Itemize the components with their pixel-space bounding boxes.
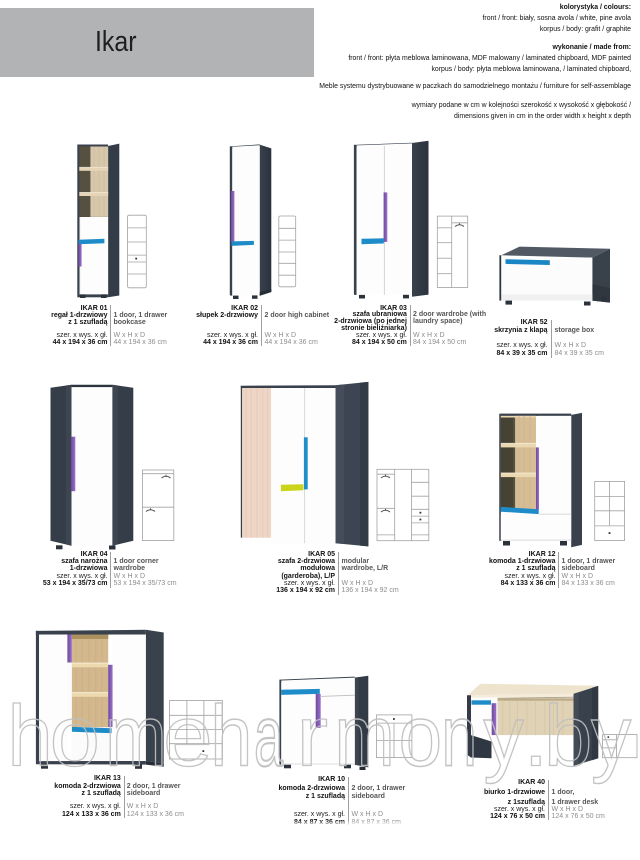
svg-text:r: r <box>296 689 328 784</box>
svg-text:m: m <box>335 687 395 783</box>
svg-text:y: y <box>591 688 631 784</box>
svg-text:o: o <box>399 689 442 784</box>
svg-text:b: b <box>544 688 593 784</box>
svg-text:o: o <box>50 688 100 784</box>
svg-text:m: m <box>105 688 167 784</box>
svg-text:e: e <box>163 688 213 784</box>
svg-text:a: a <box>254 689 283 785</box>
svg-text:n: n <box>441 688 477 784</box>
svg-text:h: h <box>210 689 252 784</box>
svg-text:y: y <box>484 688 525 784</box>
svg-text:h: h <box>8 687 53 784</box>
